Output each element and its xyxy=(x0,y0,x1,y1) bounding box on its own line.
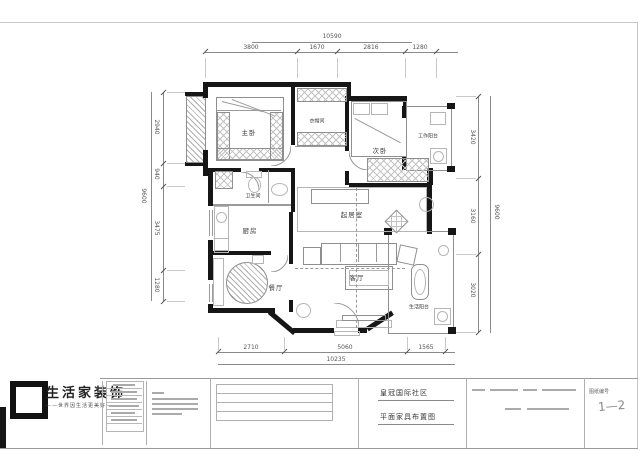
schedule-col-line xyxy=(216,384,217,421)
wall xyxy=(208,168,213,206)
brand-logo-icon xyxy=(10,381,48,419)
wall xyxy=(448,228,456,235)
dim-label: 5060 xyxy=(337,344,352,351)
room-label-sitting: 起居室 xyxy=(341,209,364,219)
wardrobe-hatch xyxy=(367,158,429,182)
titleblock-divider xyxy=(102,381,103,445)
schedule-row-line xyxy=(216,384,332,385)
info-table-text-bar xyxy=(111,391,137,393)
dim-ext xyxy=(337,58,338,78)
titleblock-divider xyxy=(466,378,467,448)
wall xyxy=(447,103,455,109)
schedule-row-line xyxy=(216,402,332,403)
info-table-row-line xyxy=(107,416,142,417)
dim-ext xyxy=(205,58,206,78)
notes-text-bar xyxy=(152,408,198,410)
dim-label: 2816 xyxy=(363,44,378,51)
dim-label: 940 xyxy=(153,168,160,179)
wall xyxy=(289,212,293,264)
schedule-row-line xyxy=(216,411,332,412)
field-text-bar xyxy=(523,389,537,391)
dim-label: 9600 xyxy=(493,204,500,219)
sofa-cushion-line xyxy=(340,244,341,262)
titleblock-divider xyxy=(146,381,147,445)
wall-thin xyxy=(295,146,347,147)
dim-label: 3160 xyxy=(469,208,476,223)
window xyxy=(212,210,213,236)
dim-label: 9600 xyxy=(140,188,147,203)
wall xyxy=(203,82,208,98)
stove xyxy=(214,238,229,251)
info-table-text-bar xyxy=(111,398,137,400)
tv xyxy=(342,315,386,321)
toilet xyxy=(248,177,261,193)
info-table-text-bar xyxy=(111,412,135,414)
dim-label: 2710 xyxy=(243,344,258,351)
dim-line xyxy=(205,52,458,53)
info-table-text-bar xyxy=(113,384,135,386)
frame-bottom-line xyxy=(0,448,638,449)
room-label-dining: 餐厅 xyxy=(269,282,284,292)
wall xyxy=(291,168,295,212)
titleblock-divider xyxy=(358,378,359,448)
dim-line xyxy=(252,42,412,43)
room-label-master: 主卧 xyxy=(242,127,257,137)
dim-line xyxy=(478,96,479,333)
drawing-title: 平面家具布置图 xyxy=(380,412,436,422)
wall xyxy=(259,168,293,172)
info-table-text-bar xyxy=(111,419,137,421)
dim-label: 1565 xyxy=(418,344,433,351)
schedule-col-line xyxy=(332,384,333,421)
dim-ext xyxy=(405,58,406,78)
dim-ext xyxy=(167,301,185,302)
dim-ext xyxy=(456,254,476,255)
dim-line xyxy=(490,96,491,333)
dim-ext xyxy=(436,58,437,78)
info-table-row-line xyxy=(107,409,142,410)
entry-threshold xyxy=(334,331,360,336)
dim-line xyxy=(151,92,152,301)
field-text-bar xyxy=(472,389,485,391)
dim-line xyxy=(218,352,455,353)
sheet-number: 1—2 xyxy=(597,398,625,414)
notes-text-bar xyxy=(152,413,182,415)
dim-ext xyxy=(284,337,285,350)
wall-diagonal xyxy=(268,310,296,335)
field-text-bar xyxy=(527,408,569,410)
wall xyxy=(289,300,293,312)
cabinet xyxy=(213,258,224,306)
titleblock-divider xyxy=(584,378,585,448)
tv-console xyxy=(336,320,392,328)
dashed-centerline xyxy=(295,268,405,269)
dim-label: 2940 xyxy=(153,119,160,134)
dim-ext xyxy=(456,178,476,179)
wardrobe-hatch xyxy=(297,88,347,102)
pillow xyxy=(371,103,388,115)
side-table xyxy=(311,189,369,204)
project-name-underline xyxy=(378,400,454,401)
sink xyxy=(216,212,227,223)
dim-label: 10590 xyxy=(322,33,341,40)
dim-ext xyxy=(456,96,476,97)
room-label-life-balcony: 生活阳台 xyxy=(409,304,429,311)
dim-label: 1280 xyxy=(153,277,160,292)
plant xyxy=(296,303,311,318)
dim-label: 1280 xyxy=(412,44,427,51)
door-arc xyxy=(271,255,288,272)
dining-chair xyxy=(252,255,264,264)
cabinet xyxy=(430,112,446,125)
sofa xyxy=(321,243,397,265)
info-table-text-bar xyxy=(109,405,139,407)
floorplan-sheet: 10590 3800 1670 2816 1280 2710 5060 1565… xyxy=(0,0,640,453)
notes-text-bar xyxy=(152,398,198,400)
sofa-cushion-line xyxy=(376,244,377,262)
shower xyxy=(215,171,233,189)
dim-ext xyxy=(167,163,185,164)
washing-machine-drum xyxy=(433,151,444,162)
page-corner-black-bar xyxy=(0,407,6,448)
dim-ext xyxy=(218,337,219,350)
info-table-row-line xyxy=(107,423,142,424)
wall xyxy=(448,327,456,334)
bathtub-inner xyxy=(414,269,426,295)
dim-label: 3800 xyxy=(243,44,258,51)
room-label-work-balcony: 工作阳台 xyxy=(418,133,438,140)
sheet-label: 图纸编号 xyxy=(589,388,609,395)
schedule-row-line xyxy=(216,393,332,394)
wall xyxy=(447,166,455,172)
dim-line xyxy=(218,364,455,365)
dining-table-round xyxy=(226,262,268,304)
washing-machine-drum xyxy=(437,311,448,322)
titleblock-top-line xyxy=(100,378,638,379)
field-text-bar xyxy=(505,408,521,410)
frame-top-line xyxy=(0,22,638,23)
info-table-row-line xyxy=(107,395,142,396)
drawing-title-underline xyxy=(378,424,454,425)
wall xyxy=(211,308,275,313)
dim-label: 3420 xyxy=(469,129,476,144)
field-text-bar xyxy=(490,389,518,391)
dim-tick xyxy=(161,299,167,305)
room-label-cloakroom: 衣帽间 xyxy=(309,118,324,125)
sink xyxy=(438,245,449,256)
info-table-row-line xyxy=(107,402,142,403)
dim-ext xyxy=(407,337,408,350)
titleblock-divider xyxy=(210,378,211,448)
dim-ext xyxy=(167,92,185,93)
room-label-kitchen: 厨房 xyxy=(243,225,258,235)
pillow-line xyxy=(217,110,281,111)
dim-label: 3020 xyxy=(469,282,476,297)
notes-text-bar xyxy=(152,392,164,394)
armchair xyxy=(396,244,417,265)
frame-right-line xyxy=(637,22,638,448)
washbasin xyxy=(271,183,288,196)
dim-label: 3475 xyxy=(153,220,160,235)
schedule-row-line xyxy=(216,420,332,421)
dim-tick xyxy=(476,330,482,336)
tatami-hatch xyxy=(270,112,283,160)
sofa-cushion-line xyxy=(358,244,359,262)
counter-line xyxy=(268,170,269,203)
project-name: 皇冠国际社区 xyxy=(380,388,428,398)
dim-label: 1670 xyxy=(309,44,324,51)
field-text-bar xyxy=(542,389,576,391)
plant xyxy=(419,197,434,212)
dim-label: 10235 xyxy=(326,356,345,363)
armchair xyxy=(303,247,321,265)
wardrobe-hatch xyxy=(297,132,347,146)
wall xyxy=(203,82,351,87)
dim-ext xyxy=(456,332,476,333)
room-label-living: 客厅 xyxy=(350,272,365,282)
wall xyxy=(291,87,295,145)
room-label-second-bedroom: 次卧 xyxy=(373,145,388,155)
notes-text-bar xyxy=(152,403,198,405)
window xyxy=(209,210,210,236)
dim-ext xyxy=(167,270,185,271)
dim-ext xyxy=(167,186,185,187)
dim-ext xyxy=(445,337,446,350)
pillow xyxy=(353,103,370,115)
wall xyxy=(293,328,334,333)
window xyxy=(209,284,210,302)
info-table-row-line xyxy=(107,388,142,389)
dim-ext xyxy=(297,58,298,78)
room-label-bathroom: 卫生间 xyxy=(245,193,260,200)
